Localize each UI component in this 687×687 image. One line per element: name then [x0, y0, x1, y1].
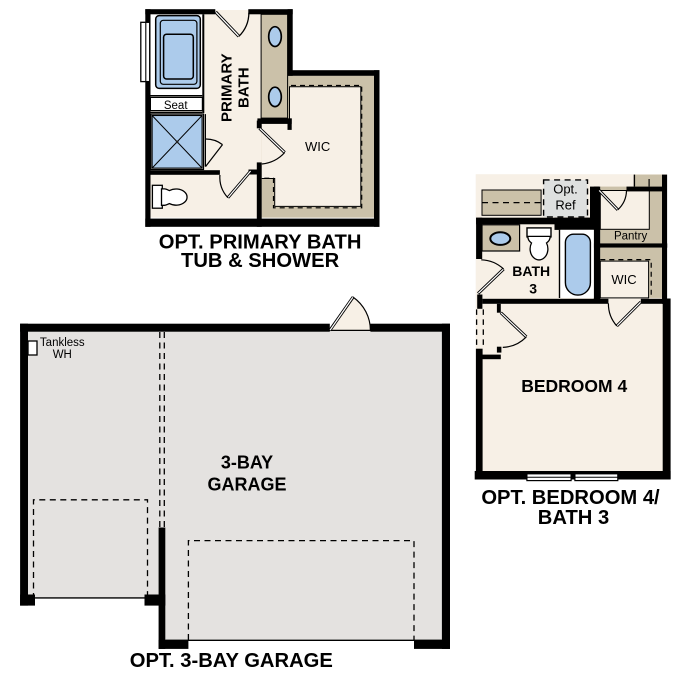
- svg-text:BATH: BATH: [512, 263, 550, 279]
- svg-text:Opt.: Opt.: [553, 182, 578, 197]
- svg-text:3: 3: [529, 281, 537, 297]
- svg-text:BEDROOM 4: BEDROOM 4: [521, 376, 627, 396]
- svg-text:OPT. 3-BAY GARAGE: OPT. 3-BAY GARAGE: [130, 650, 333, 672]
- svg-text:WIC: WIC: [611, 272, 636, 287]
- svg-text:WIC: WIC: [305, 139, 330, 154]
- svg-text:3-BAY: 3-BAY: [221, 453, 273, 473]
- svg-text:BATH 3: BATH 3: [538, 507, 609, 529]
- svg-text:Seat: Seat: [164, 100, 188, 112]
- svg-text:TUB & SHOWER: TUB & SHOWER: [181, 250, 340, 272]
- svg-text:GARAGE: GARAGE: [207, 474, 286, 494]
- svg-text:Ref: Ref: [555, 198, 576, 213]
- svg-text:WH: WH: [53, 349, 72, 361]
- svg-text:Tankless: Tankless: [40, 337, 85, 349]
- svg-text:Pantry: Pantry: [614, 231, 647, 243]
